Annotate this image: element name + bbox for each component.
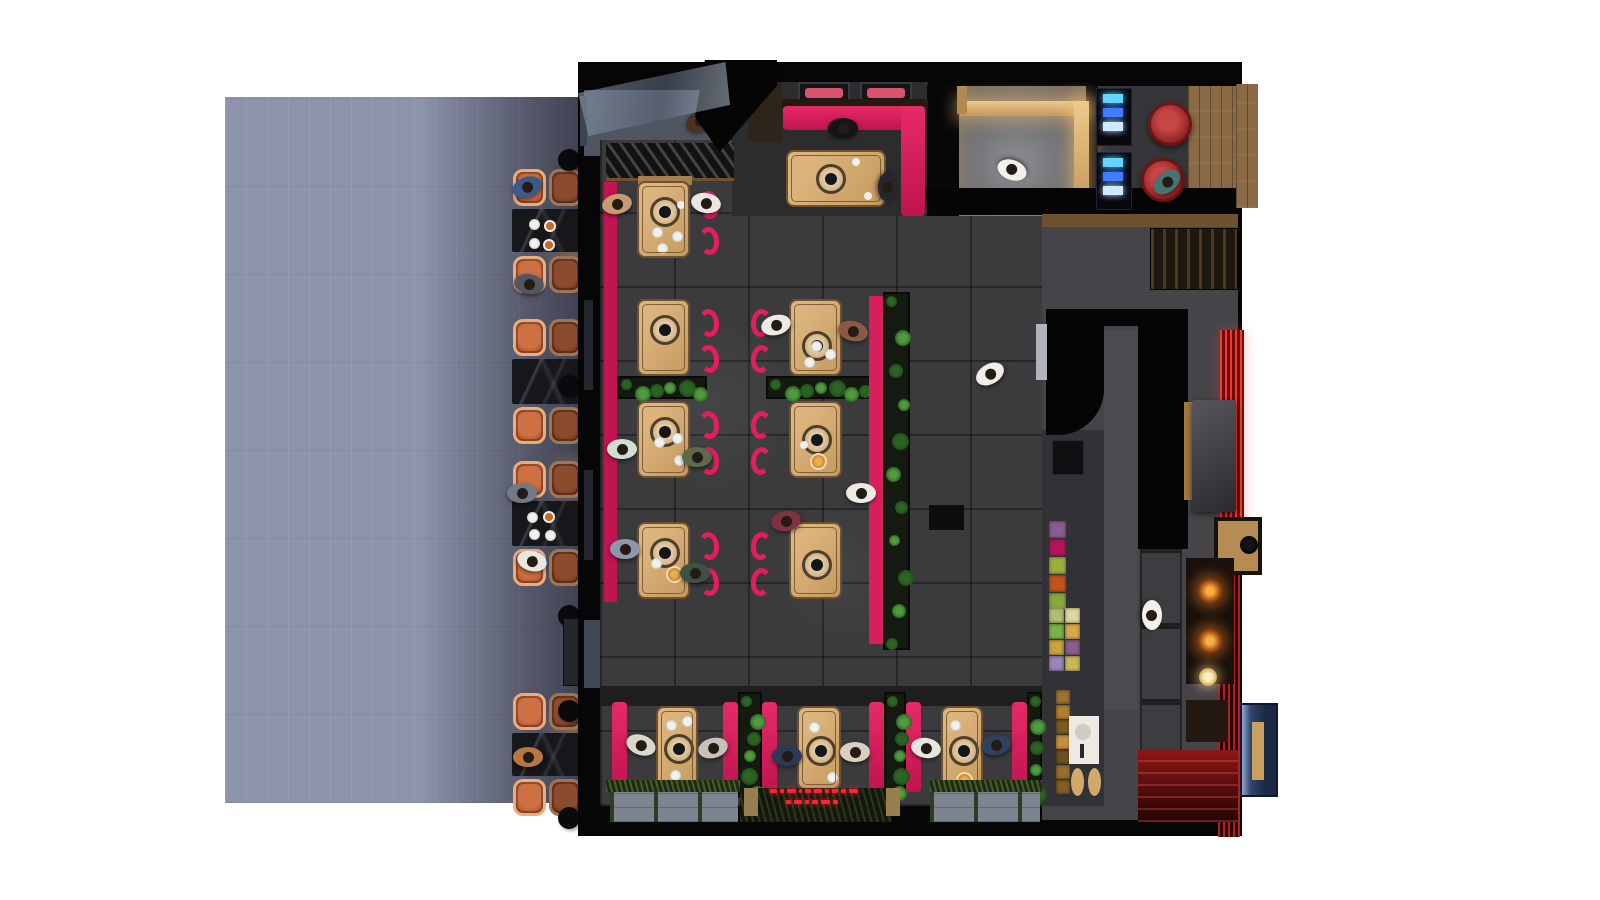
hotpot <box>958 745 970 757</box>
grass-strip <box>606 780 740 792</box>
plate <box>811 341 822 352</box>
dining-table <box>637 299 690 376</box>
facade-planting <box>740 788 892 822</box>
wok-burner <box>1197 628 1223 654</box>
bar-counter <box>1138 309 1188 549</box>
arcade-screen <box>1096 88 1132 146</box>
floorplan-canvas <box>0 0 1600 900</box>
plate <box>809 722 820 733</box>
hotpot <box>811 559 823 571</box>
bollard <box>558 149 580 171</box>
tabletop-grill <box>650 315 680 345</box>
tabletop-grill <box>806 736 836 766</box>
hotpot <box>825 173 837 185</box>
booth-table <box>941 706 983 790</box>
topping-trays <box>1049 521 1066 610</box>
grass-strip <box>930 780 1042 792</box>
person <box>770 743 804 769</box>
cup <box>677 201 685 209</box>
bollard <box>558 700 580 722</box>
plate <box>529 219 540 230</box>
terrace-chair <box>513 779 546 816</box>
food-plate <box>544 220 556 232</box>
person <box>510 268 548 300</box>
wood-board <box>1071 768 1084 796</box>
walkway-pavers <box>930 792 1040 822</box>
spice-trays <box>1056 690 1070 794</box>
arcade-screen <box>1096 152 1132 210</box>
kitchen-hearth <box>1186 558 1234 684</box>
prep-knife <box>1080 744 1084 758</box>
plate <box>527 512 538 523</box>
plate <box>529 529 540 540</box>
hotpot <box>659 547 671 559</box>
cup <box>800 441 808 449</box>
tabletop-grill <box>949 736 979 766</box>
tabletop-grill <box>802 331 832 361</box>
prep-bowl <box>1075 724 1091 740</box>
person <box>1139 598 1165 632</box>
seat-cushion <box>805 88 843 98</box>
person-head <box>617 444 628 455</box>
left-wall-window <box>584 300 593 390</box>
host-wood-sliver <box>957 86 967 114</box>
kitchen-corridor <box>1104 330 1138 710</box>
menu-screen <box>1036 324 1047 380</box>
person-head <box>883 182 894 193</box>
wood-post <box>886 788 900 816</box>
bollard <box>558 375 580 397</box>
dining-table <box>637 181 690 258</box>
hotpot <box>659 426 671 438</box>
kitchen-red-floor <box>1138 750 1238 822</box>
plate <box>529 238 540 249</box>
neon-sign <box>786 800 838 804</box>
plate <box>545 530 556 541</box>
wok-burner <box>1197 578 1223 604</box>
booth-planter <box>884 692 906 798</box>
wood-shelving <box>1150 228 1238 290</box>
exterior-wood-deck <box>1236 84 1258 208</box>
dining-table <box>789 522 842 599</box>
plant-hedge <box>883 292 910 650</box>
service-stand <box>929 505 964 530</box>
person <box>826 115 860 141</box>
booth-bench <box>1012 702 1027 792</box>
hotpot <box>673 743 685 755</box>
booth-bench <box>901 106 925 216</box>
plate <box>672 231 683 242</box>
plate <box>652 227 663 238</box>
terrace-chair <box>513 693 546 730</box>
food-plate <box>543 511 555 523</box>
person <box>680 444 714 470</box>
plate <box>682 716 693 727</box>
person-head <box>850 747 861 758</box>
hotpot <box>811 434 823 446</box>
tabletop-grill <box>802 550 832 580</box>
booth-table <box>656 706 698 790</box>
person <box>875 170 901 204</box>
cup <box>852 158 860 166</box>
person <box>907 732 945 764</box>
person-head <box>692 452 703 463</box>
window-booth-table <box>786 150 886 207</box>
plate <box>654 437 665 448</box>
fridge-line <box>1140 549 1182 777</box>
person <box>608 536 642 562</box>
partition-wall <box>925 188 1242 215</box>
left-wall-door <box>584 620 600 688</box>
person-head <box>838 123 849 134</box>
walkway-pavers <box>610 792 738 822</box>
plate <box>657 243 668 254</box>
plate <box>804 357 815 368</box>
tabletop-grill <box>650 197 680 227</box>
hotpot <box>659 324 671 336</box>
neon-sign <box>770 789 858 793</box>
hotpot <box>815 745 827 757</box>
person-head <box>856 488 867 499</box>
tabletop-grill <box>664 734 694 764</box>
booth-planter <box>738 692 762 798</box>
banquette <box>869 296 884 644</box>
tabletop-grill <box>802 425 832 455</box>
coffee-station <box>1052 440 1084 475</box>
top-wall <box>725 62 1242 82</box>
hotpot <box>659 206 671 218</box>
lounge-chair <box>1148 102 1192 146</box>
person <box>678 560 712 586</box>
seat-cushion <box>867 88 905 98</box>
dining-table <box>789 401 842 478</box>
plate <box>950 720 961 731</box>
person-head <box>523 752 534 763</box>
person-head <box>782 751 793 762</box>
person <box>511 744 545 770</box>
hotpot <box>811 340 823 352</box>
wood-board <box>1088 768 1101 796</box>
planter-divider <box>617 376 707 399</box>
cup <box>864 192 872 200</box>
person <box>838 739 872 765</box>
person <box>605 436 639 462</box>
person <box>687 187 725 219</box>
wood-post <box>744 788 758 816</box>
wood-ledge <box>1042 214 1238 227</box>
person-head <box>620 544 631 555</box>
tabletop-grill <box>650 417 680 447</box>
person-head <box>690 568 701 579</box>
tabletop-grill <box>650 538 680 568</box>
bollard <box>558 807 580 829</box>
plate <box>672 433 683 444</box>
person <box>505 480 539 506</box>
topping-trays <box>1049 608 1080 671</box>
plate <box>666 720 677 731</box>
host-counter <box>960 101 1088 116</box>
person-head <box>1147 610 1158 621</box>
sign-box-light <box>1252 722 1264 780</box>
kitchen-equipment <box>1186 700 1228 742</box>
terrace-chair <box>513 319 546 356</box>
pizza <box>810 453 827 470</box>
left-wall-window <box>584 470 593 560</box>
food-plate <box>543 239 555 251</box>
tabletop-grill <box>816 164 846 194</box>
booth-back-wall <box>600 686 1042 706</box>
heat-lamp <box>1199 668 1217 686</box>
terrace-chair <box>513 407 546 444</box>
person <box>844 480 878 506</box>
plate <box>827 772 838 783</box>
extraction-hood <box>1192 400 1236 512</box>
plate <box>651 558 662 569</box>
person-head <box>517 488 528 499</box>
plate <box>825 349 836 360</box>
pot-hole <box>1240 536 1258 554</box>
